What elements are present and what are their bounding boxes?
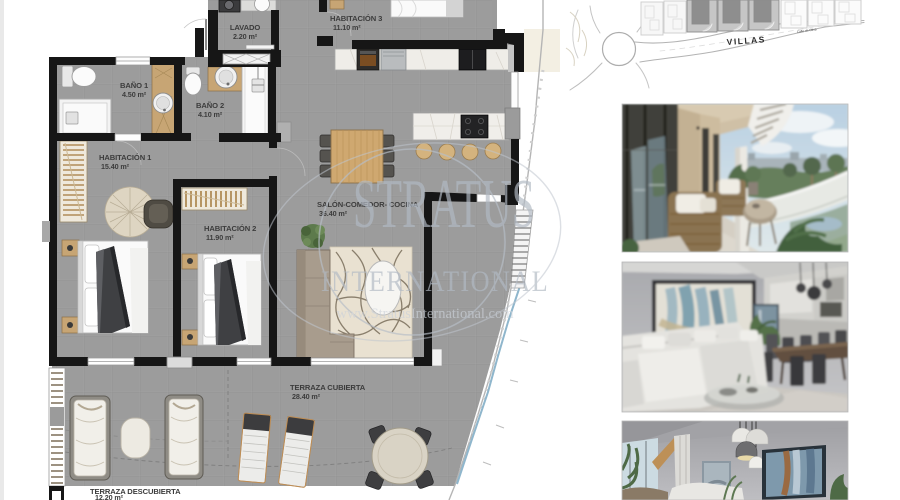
svg-text:STRATUS: STRATUS (353, 166, 535, 242)
svg-text:28.40 m²: 28.40 m² (292, 392, 321, 401)
svg-text:BAÑO 2: BAÑO 2 (196, 101, 224, 110)
svg-text:INTERNATIONAL: INTERNATIONAL (321, 266, 549, 299)
svg-text:4.10 m²: 4.10 m² (198, 110, 223, 119)
svg-text:11.10 m²: 11.10 m² (333, 23, 361, 32)
svg-text:15.40 m²: 15.40 m² (101, 162, 130, 171)
svg-text:HABITACIÓN 2: HABITACIÓN 2 (204, 224, 256, 233)
svg-text:2.20 m²: 2.20 m² (233, 32, 258, 41)
svg-text:www.StratusInternational.com: www.StratusInternational.com (336, 306, 514, 322)
svg-text:HABITACIÓN 1: HABITACIÓN 1 (99, 153, 152, 162)
svg-text:LAVADO: LAVADO (230, 23, 261, 32)
svg-text:BAÑO 1: BAÑO 1 (120, 81, 149, 90)
svg-text:4.50 m²: 4.50 m² (122, 90, 147, 99)
svg-text:12.20 m²: 12.20 m² (95, 493, 124, 500)
svg-text:TERRAZA CUBIERTA: TERRAZA CUBIERTA (290, 383, 366, 392)
svg-text:11.90 m²: 11.90 m² (206, 233, 234, 242)
svg-text:HABITACIÓN 3: HABITACIÓN 3 (330, 14, 382, 23)
